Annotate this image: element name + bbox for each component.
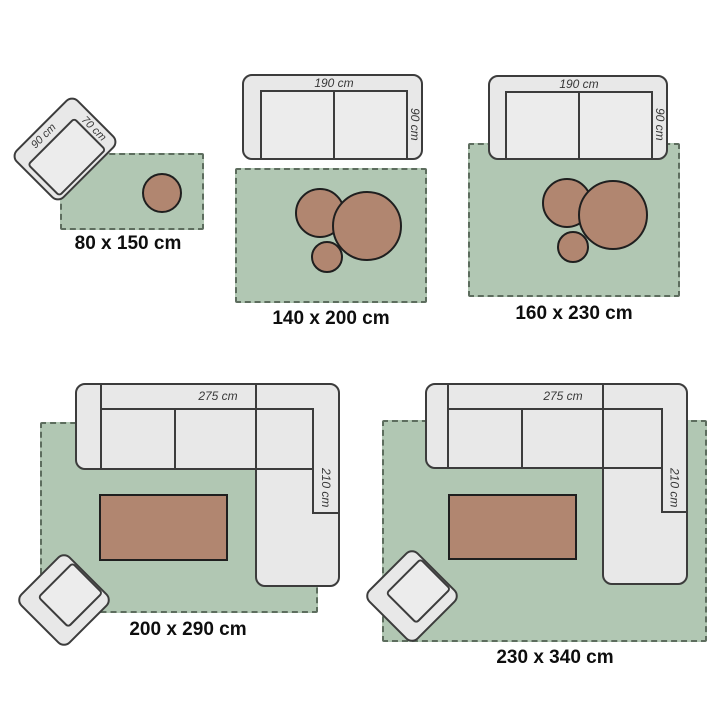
sofa-width-label: 190 cm [260,76,408,90]
pouf-circle [142,173,182,213]
two-seat-sofa: 190 cm 90 cm [488,75,668,160]
sofa-depth-label: 90 cm [408,90,422,158]
corner-sofa-depth-label: 210 cm [663,450,686,526]
corner-sofa-backrest-line [447,408,663,410]
corner-sofa-depth-label: 210 cm [314,450,338,526]
corner-sofa-width-label: 275 cm [158,389,278,403]
rug-size-comparison-diagram: 90 cm 70 cm 80 x 150 cm 190 cm 90 cm 140… [0,0,720,720]
round-table-large [332,191,402,261]
corner-sofa-backrest-line [100,408,314,410]
size-label-80x150: 80 x 150 cm [28,233,228,255]
corner-sofa-cushion-divider [521,408,523,467]
corner-sofa-corner-seat-line [255,468,314,470]
size-label-230x340: 230 x 340 cm [455,647,655,669]
two-seat-sofa: 190 cm 90 cm [242,74,423,160]
coffee-table [448,494,577,560]
corner-sofa-width-label: 275 cm [503,389,623,403]
sofa-seat-divider [333,90,335,158]
sofa-depth-label: 90 cm [653,91,667,158]
size-label-160x230: 160 x 230 cm [474,303,674,325]
size-label-140x200: 140 x 200 cm [231,308,431,330]
coffee-table [99,494,228,561]
sofa-width-label: 190 cm [505,77,653,91]
corner-sofa-armrest-line [447,385,449,467]
corner-sofa-corner-seat-line [602,467,663,469]
sofa-seat-divider [578,91,580,158]
corner-sofa-cushion-divider [174,408,176,468]
size-label-200x290: 200 x 290 cm [88,619,288,641]
corner-sofa-armrest-line [100,385,102,468]
round-table-large [578,180,648,250]
